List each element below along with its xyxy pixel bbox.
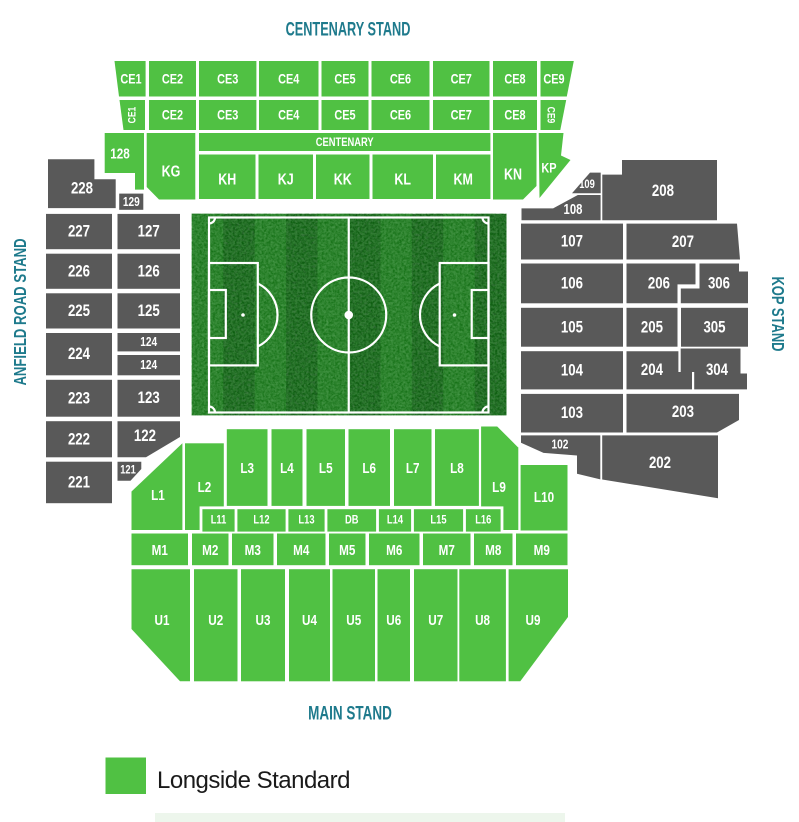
svg-text:M2: M2: [202, 542, 218, 559]
svg-text:CE6: CE6: [390, 71, 411, 87]
svg-text:227: 227: [68, 222, 90, 241]
svg-text:306: 306: [708, 274, 730, 293]
svg-text:L14: L14: [387, 514, 403, 527]
svg-text:129: 129: [123, 195, 140, 209]
svg-text:CE2: CE2: [162, 71, 183, 87]
svg-text:U1: U1: [155, 612, 170, 629]
svg-text:M9: M9: [534, 542, 550, 559]
svg-text:DB: DB: [345, 514, 359, 527]
svg-text:CE6: CE6: [390, 107, 411, 123]
svg-text:204: 204: [641, 361, 664, 380]
svg-text:CE4: CE4: [278, 71, 299, 87]
svg-text:104: 104: [561, 361, 584, 380]
svg-text:108: 108: [564, 201, 583, 218]
svg-text:CE2: CE2: [162, 107, 183, 123]
svg-text:305: 305: [703, 318, 726, 337]
svg-text:106: 106: [561, 274, 583, 293]
svg-text:208: 208: [652, 182, 674, 201]
svg-text:M3: M3: [245, 542, 261, 559]
svg-text:304: 304: [706, 361, 729, 380]
svg-text:KH: KH: [218, 171, 236, 189]
svg-text:222: 222: [68, 430, 90, 449]
svg-text:122: 122: [134, 427, 156, 446]
svg-text:CE3: CE3: [217, 107, 238, 123]
svg-text:M4: M4: [293, 542, 310, 559]
svg-text:CE4: CE4: [278, 107, 299, 123]
svg-text:123: 123: [138, 389, 160, 408]
svg-text:U8: U8: [475, 612, 490, 629]
svg-text:126: 126: [138, 262, 160, 281]
svg-text:207: 207: [672, 233, 694, 252]
svg-text:CE3: CE3: [217, 71, 238, 87]
svg-text:L4: L4: [280, 460, 294, 477]
svg-text:226: 226: [68, 262, 90, 281]
svg-text:221: 221: [68, 473, 91, 492]
svg-text:109: 109: [579, 178, 595, 191]
svg-text:M8: M8: [485, 542, 502, 559]
svg-text:107: 107: [561, 232, 583, 251]
svg-text:CE5: CE5: [334, 107, 355, 123]
svg-text:CENTENARY: CENTENARY: [316, 136, 374, 149]
svg-text:L6: L6: [362, 460, 376, 477]
svg-text:L13: L13: [298, 514, 314, 527]
svg-text:224: 224: [68, 345, 91, 364]
svg-text:127: 127: [138, 222, 160, 241]
svg-text:124: 124: [140, 335, 157, 349]
svg-text:CE9: CE9: [543, 71, 564, 87]
svg-text:U9: U9: [526, 612, 541, 629]
svg-text:MAIN STAND: MAIN STAND: [308, 703, 392, 724]
svg-text:205: 205: [641, 318, 664, 337]
svg-text:U2: U2: [208, 612, 223, 629]
svg-text:CE7: CE7: [451, 71, 472, 87]
svg-text:202: 202: [649, 454, 671, 473]
svg-text:ANFIELD ROAD STAND: ANFIELD ROAD STAND: [11, 238, 30, 385]
svg-text:128: 128: [110, 145, 130, 162]
svg-text:U5: U5: [346, 612, 361, 629]
svg-text:L11: L11: [211, 514, 227, 527]
svg-text:203: 203: [672, 403, 694, 422]
svg-text:M7: M7: [439, 542, 455, 559]
svg-text:CE9: CE9: [544, 107, 556, 124]
svg-text:KJ: KJ: [278, 171, 294, 189]
svg-text:CE8: CE8: [504, 107, 525, 123]
svg-text:KM: KM: [454, 171, 473, 189]
svg-text:CE7: CE7: [451, 107, 472, 123]
svg-text:228: 228: [71, 179, 93, 198]
svg-text:L16: L16: [475, 514, 491, 527]
svg-text:U7: U7: [428, 612, 443, 629]
svg-text:KL: KL: [394, 171, 411, 189]
svg-text:L5: L5: [319, 460, 333, 477]
svg-text:L12: L12: [253, 514, 269, 527]
svg-text:U4: U4: [302, 612, 317, 629]
svg-text:124: 124: [140, 358, 157, 372]
svg-text:KG: KG: [162, 163, 181, 181]
svg-text:M5: M5: [339, 542, 356, 559]
svg-text:CENTENARY STAND: CENTENARY STAND: [286, 19, 411, 40]
svg-text:CE1: CE1: [126, 106, 138, 123]
svg-text:102: 102: [552, 437, 569, 451]
svg-text:M1: M1: [152, 542, 169, 559]
svg-text:L9: L9: [492, 479, 506, 496]
svg-text:225: 225: [68, 301, 91, 320]
svg-text:KK: KK: [334, 171, 353, 189]
svg-text:105: 105: [561, 318, 584, 337]
svg-text:L3: L3: [240, 460, 254, 477]
svg-text:L8: L8: [450, 460, 464, 477]
svg-text:CE8: CE8: [504, 71, 525, 87]
svg-text:125: 125: [138, 301, 161, 320]
svg-text:CE5: CE5: [334, 71, 355, 87]
svg-text:U6: U6: [386, 612, 401, 629]
svg-text:Longside Standard: Longside Standard: [157, 767, 350, 794]
svg-text:103: 103: [561, 404, 583, 423]
svg-text:L10: L10: [534, 489, 554, 506]
svg-text:121: 121: [120, 463, 136, 476]
svg-text:KOP STAND: KOP STAND: [767, 276, 787, 351]
svg-text:206: 206: [648, 274, 670, 293]
svg-text:CE1: CE1: [120, 71, 141, 87]
svg-text:L7: L7: [406, 460, 420, 477]
svg-text:L15: L15: [430, 514, 446, 527]
svg-text:L1: L1: [151, 487, 165, 504]
svg-text:KP: KP: [541, 160, 556, 176]
svg-text:L2: L2: [198, 479, 212, 496]
svg-text:223: 223: [68, 389, 90, 408]
svg-text:KN: KN: [504, 166, 522, 184]
svg-text:U3: U3: [256, 612, 271, 629]
svg-text:M6: M6: [386, 542, 402, 559]
